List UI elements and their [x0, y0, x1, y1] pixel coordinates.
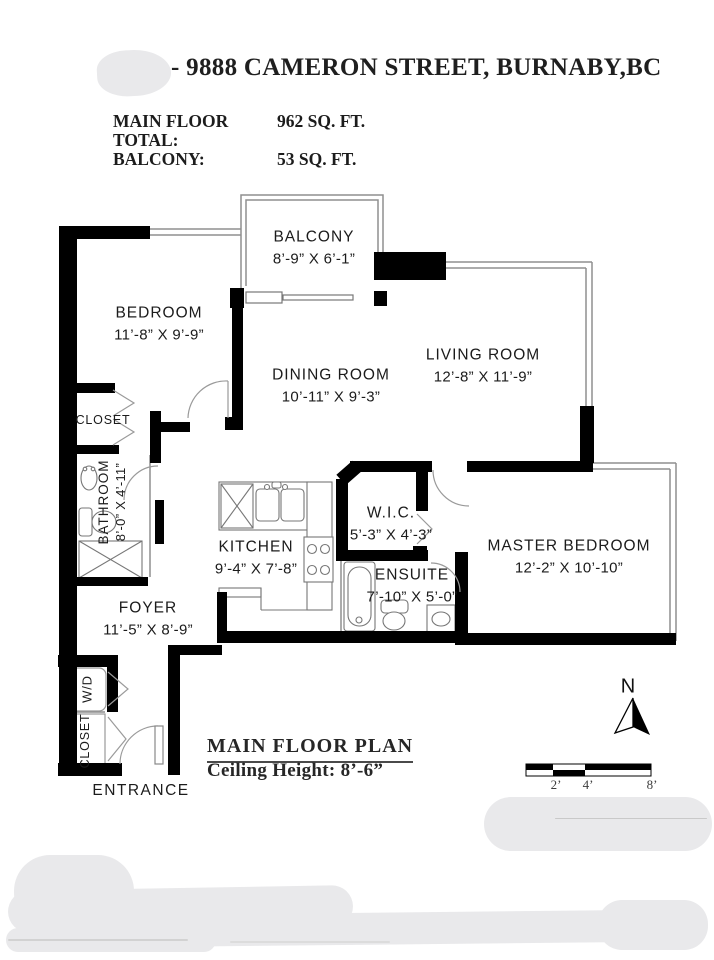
north-label: N [621, 676, 635, 699]
room-label-foyer: FOYER 11’-5” X 8’-9” [103, 600, 193, 639]
room-label-kitchen: KITCHEN 9’-4” X 7’-8” [215, 539, 297, 578]
floor-plan-page: - 9888 CAMERON STREET, BURNABY,BC MAIN F… [0, 0, 714, 960]
room-label-bedroom: BEDROOM 11’-8” X 9’-9” [114, 305, 204, 344]
room-label-wic: W.I.C. 5’-3” X 4’-3” [350, 505, 432, 544]
area-row-balcony: BALCONY: 53 SQ. FT. [113, 150, 365, 169]
area-value: 53 SQ. FT. [277, 150, 365, 169]
entry-closet-label: CLOSET [78, 714, 92, 769]
north-arrow-icon [615, 698, 650, 735]
room-label-dining-room: DINING ROOM 10’-11” X 9’-3” [272, 367, 390, 406]
room-label-living-room: LIVING ROOM 12’-8” X 11’-9” [426, 347, 540, 386]
room-label-ensuite: ENSUITE 7’-10” X 5’-0” [367, 567, 458, 606]
plan-title: MAIN FLOOR PLAN [207, 735, 413, 763]
scale-tick-4: 4’ [583, 777, 594, 793]
redaction-smudge [230, 941, 390, 943]
washer-dryer-label: W/D [80, 675, 95, 703]
redaction-blob [484, 797, 712, 851]
scale-tick-8: 8’ [647, 777, 658, 793]
scale-bar [526, 764, 651, 776]
room-label-master-bedroom: MASTER BEDROOM 12’-2” X 10’-10” [488, 538, 651, 577]
room-label-bathroom: BATHROOM 8’-0” X 4’-11” [96, 460, 128, 545]
room-label-balcony: BALCONY 8’-9” X 6’-1” [273, 229, 355, 268]
area-label: BALCONY: [113, 150, 277, 169]
bedroom-closet-label: CLOSET [76, 413, 131, 427]
area-label: MAIN FLOOR TOTAL: [113, 112, 277, 150]
area-row-main-floor: MAIN FLOOR TOTAL: 962 SQ. FT. [113, 112, 365, 150]
scale-tick-2: 2’ [551, 777, 562, 793]
entrance-label: ENTRANCE [92, 782, 189, 800]
area-summary: MAIN FLOOR TOTAL: 962 SQ. FT. BALCONY: 5… [113, 112, 365, 169]
address-title: - 9888 CAMERON STREET, BURNABY,BC [171, 54, 662, 82]
redaction-smudge [555, 818, 707, 819]
ceiling-height: Ceiling Height: 8’-6” [207, 760, 383, 782]
area-value: 962 SQ. FT. [277, 112, 365, 150]
redaction-smudge [8, 939, 188, 941]
redaction-blob [598, 900, 708, 950]
balcony-sliding-door [246, 292, 353, 303]
